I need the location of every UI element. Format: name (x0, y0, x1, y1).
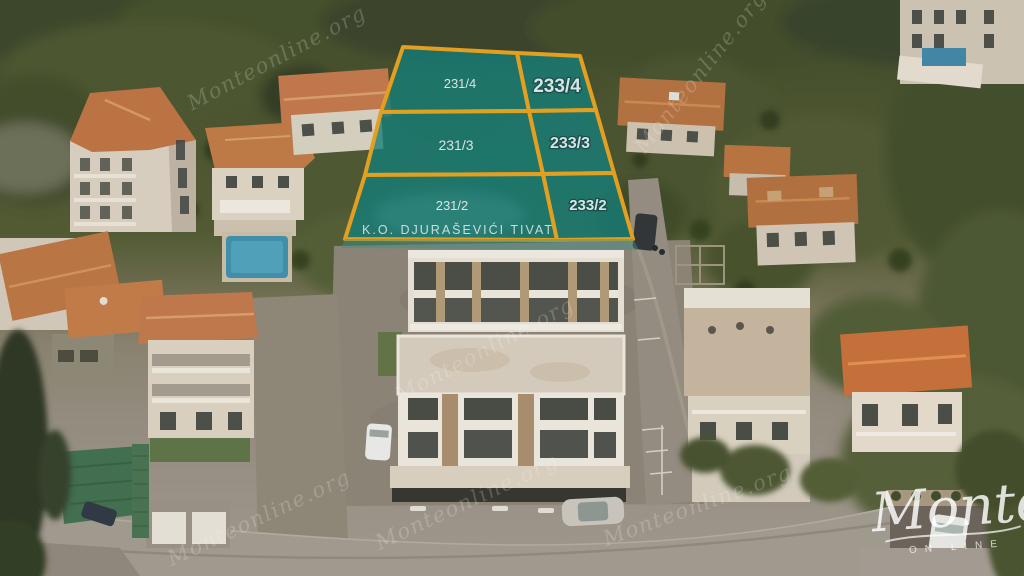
logo-wordmark: Monte (870, 479, 1024, 539)
aerial-photo: 231/4 233/4 231/3 233/3 231/2 233/2 K.O.… (0, 0, 1024, 576)
logo: Monte ON LINE (870, 479, 1024, 559)
